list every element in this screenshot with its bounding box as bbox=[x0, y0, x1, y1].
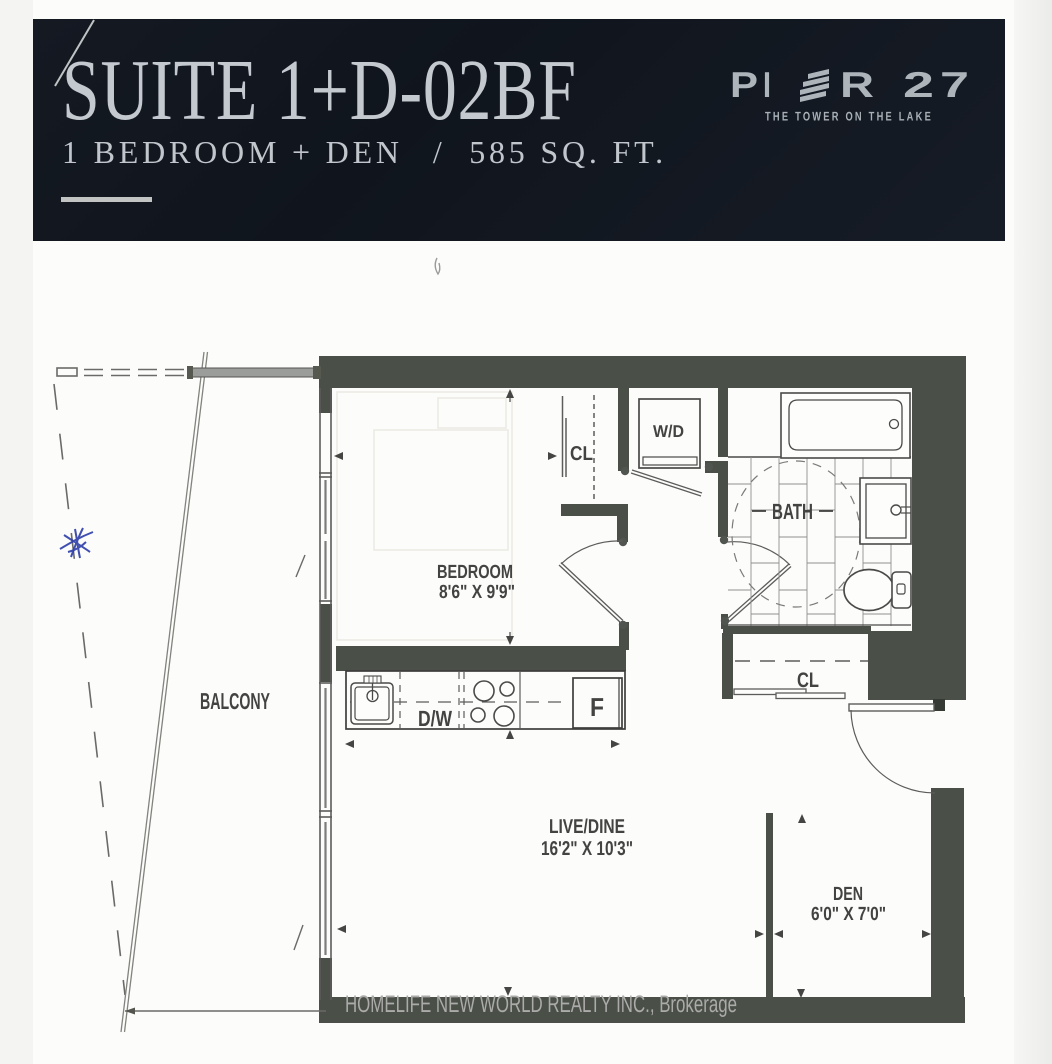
svg-text:W/D: W/D bbox=[653, 422, 684, 441]
svg-text:CL: CL bbox=[797, 669, 819, 692]
svg-text:D/W: D/W bbox=[418, 706, 452, 731]
svg-text:BATH: BATH bbox=[772, 499, 813, 524]
svg-text:6'0" X 7'0": 6'0" X 7'0" bbox=[811, 904, 886, 925]
svg-text:DEN: DEN bbox=[833, 884, 863, 905]
svg-text:BALCONY: BALCONY bbox=[200, 688, 270, 714]
svg-text:8'6" X 9'9": 8'6" X 9'9" bbox=[439, 582, 515, 603]
svg-text:16'2" X 10'3": 16'2" X 10'3" bbox=[541, 838, 633, 860]
svg-text:BEDROOM: BEDROOM bbox=[437, 562, 513, 583]
svg-text:HOMELIFE NEW WORLD REALTY INC.: HOMELIFE NEW WORLD REALTY INC., Brokerag… bbox=[345, 991, 737, 1018]
svg-text:LIVE/DINE: LIVE/DINE bbox=[549, 816, 625, 838]
svg-text:CL: CL bbox=[570, 443, 593, 465]
svg-text:F: F bbox=[590, 692, 604, 722]
